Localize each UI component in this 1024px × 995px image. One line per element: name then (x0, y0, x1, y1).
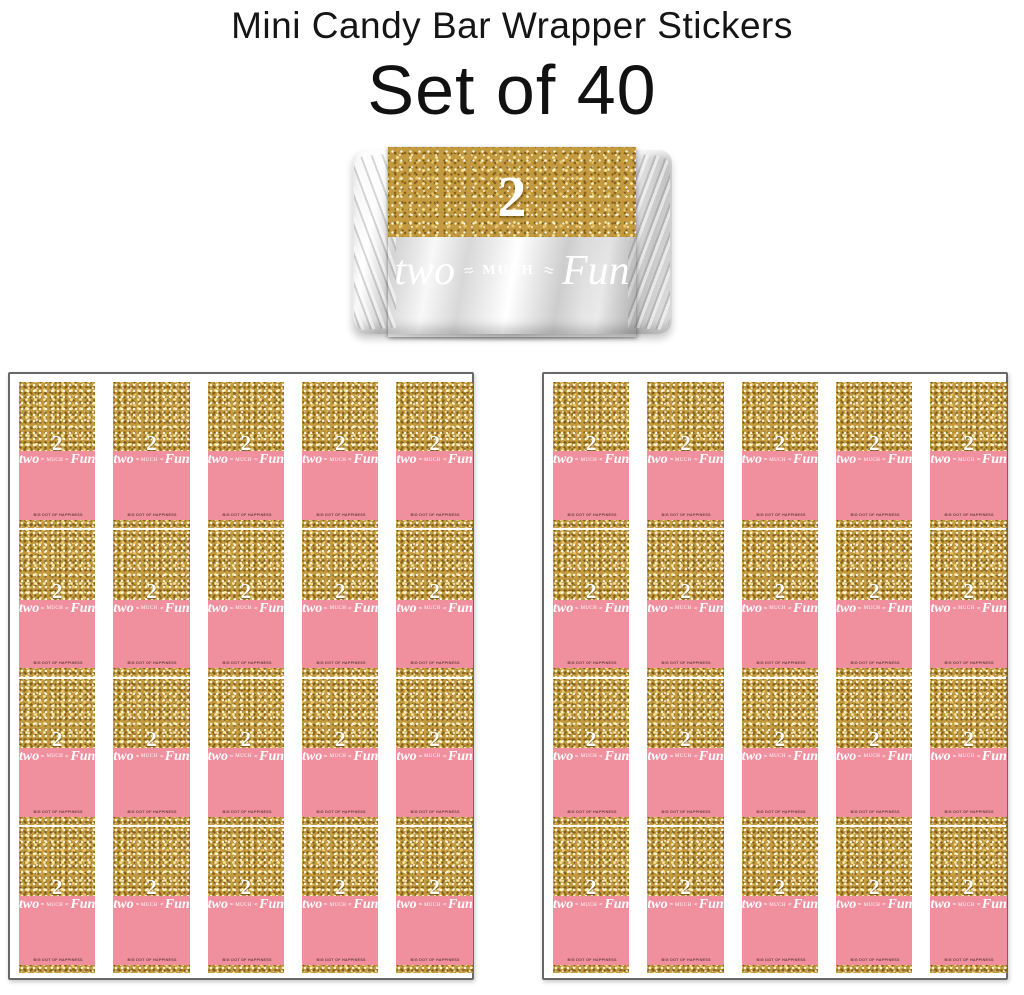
phrase-word-two: two (553, 602, 573, 616)
phrase-word-fun: Fun (354, 750, 379, 764)
wrapper-gold-bottom-band (302, 965, 378, 973)
wrapper-unit: 2two≈MUCH≈FunBIG DOT OF HAPPINESS (19, 530, 95, 676)
wrapper-unit: 2two≈MUCH≈FunBIG DOT OF HAPPINESS (930, 827, 1006, 973)
brand-line: BIG DOT OF HAPPINESS (945, 958, 992, 962)
wrapper-unit: 2two≈MUCH≈FunBIG DOT OF HAPPINESS (930, 382, 1006, 528)
sparkle-accent-icon: ≈ (976, 902, 980, 908)
wrapper-age-number: 2 (146, 583, 157, 600)
wrapper-pink-section: two≈MUCH≈FunBIG DOT OF HAPPINESS (396, 451, 472, 520)
phrase-word-two: two (208, 898, 228, 912)
wrapper-gold-bottom-band (553, 965, 629, 973)
wrapper-gold-section: 2 (208, 530, 284, 599)
wrapper-gold-section: 2 (647, 679, 723, 748)
phrase-word-two: two (19, 453, 39, 467)
phrase-word-much: MUCH (958, 754, 975, 759)
sparkle-accent-icon: ≈ (348, 754, 352, 760)
wrapper-gold-section: 2 (930, 530, 1006, 599)
wrapper-gold-bottom-band (553, 668, 629, 676)
phrase-word-two: two (836, 453, 856, 467)
wrapper-age-number: 2 (241, 879, 252, 896)
phrase-word-fun: Fun (793, 898, 818, 912)
phrase-word-much: MUCH (424, 903, 441, 908)
brand-line: BIG DOT OF HAPPINESS (128, 958, 175, 962)
wrapper-gold-bottom-band (396, 668, 472, 676)
wrapper-age-number: 2 (335, 879, 346, 896)
phrase-word-two: two (930, 453, 950, 467)
phrase-word-much: MUCH (958, 606, 975, 611)
phrase-word-fun: Fun (70, 750, 95, 764)
brand-line: BIG DOT OF HAPPINESS (411, 513, 458, 517)
phrase-word-two: two (836, 602, 856, 616)
phrase-word-fun: Fun (793, 453, 818, 467)
wrapper-age-number: 2 (963, 583, 974, 600)
sparkle-accent-icon: ≈ (763, 902, 767, 908)
sparkle-accent-icon: ≈ (348, 902, 352, 908)
phrase-word-fun: Fun (448, 750, 473, 764)
wrapper-pink-section: two≈MUCH≈FunBIG DOT OF HAPPINESS (647, 600, 723, 669)
phrase-word-much: MUCH (769, 903, 786, 908)
wrapper-gold-section: 2 (553, 382, 629, 451)
wrapper-pink-section: two≈MUCH≈FunBIG DOT OF HAPPINESS (742, 748, 818, 817)
wrapper-age-number: 2 (869, 879, 880, 896)
sparkle-accent-icon: ≈ (575, 754, 579, 760)
wrapper-gold-section: 2 (19, 382, 95, 451)
wrapper-age-number: 2 (680, 435, 691, 452)
wrapper-phrase: two≈MUCH≈Fun (208, 896, 284, 912)
wrapper-gold-bottom-band (742, 965, 818, 973)
phrase-word-two: two (742, 898, 762, 912)
wrapper-phrase: two≈MUCH≈Fun (647, 748, 723, 764)
wrapper-phrase: two≈MUCH≈Fun (553, 748, 629, 764)
phrase-word-much: MUCH (769, 606, 786, 611)
wrapper-strip: 2two≈MUCH≈FunBIG DOT OF HAPPINESS2two≈MU… (647, 382, 723, 973)
sparkle-accent-icon: ≈ (135, 902, 139, 908)
phrase-word-much: MUCH (675, 458, 692, 463)
phrase-word-two: two (930, 898, 950, 912)
wrapper-pink-section: two≈MUCH≈FunBIG DOT OF HAPPINESS (553, 600, 629, 669)
sparkle-accent-icon: ≈ (442, 754, 446, 760)
wrapper-phrase: two≈MUCH≈Fun (836, 451, 912, 467)
wrapper-gold-bottom-band (553, 520, 629, 528)
phrase-word-much: MUCH (141, 903, 158, 908)
wrapper-pink-section: two≈MUCH≈FunBIG DOT OF HAPPINESS (113, 451, 189, 520)
wrapper-gold-section: 2 (553, 827, 629, 896)
wrapper-gold-bottom-band (742, 520, 818, 528)
phrase-word-much: MUCH (482, 263, 534, 279)
wrapper-phrase: two≈MUCH≈Fun (113, 451, 189, 467)
wrapper-pink-section: two≈MUCH≈FunBIG DOT OF HAPPINESS (930, 748, 1006, 817)
wrapper-gold-section: 2 (742, 530, 818, 599)
phrase-word-much: MUCH (864, 458, 881, 463)
wrapper-unit: 2two≈MUCH≈FunBIG DOT OF HAPPINESS (302, 679, 378, 825)
phrase-word-much: MUCH (958, 903, 975, 908)
phrase-word-fun: Fun (888, 453, 913, 467)
brand-line: BIG DOT OF HAPPINESS (568, 810, 615, 814)
wrapper-gold-section: 2 (742, 382, 818, 451)
phrase-word-much: MUCH (47, 458, 64, 463)
wrapper-gold-bottom-band (647, 965, 723, 973)
brand-line: BIG DOT OF HAPPINESS (662, 662, 709, 666)
wrapper-gold-section: 2 (396, 530, 472, 599)
wrapper-unit: 2two≈MUCH≈FunBIG DOT OF HAPPINESS (396, 382, 472, 528)
wrapper-phrase: two≈MUCH≈Fun (396, 896, 472, 912)
phrase-word-much: MUCH (675, 606, 692, 611)
sparkle-accent-icon: ≈ (882, 457, 886, 463)
wrapper-unit: 2two≈MUCH≈FunBIG DOT OF HAPPINESS (930, 530, 1006, 676)
wrapper-pink-section: two≈MUCH≈FunBIG DOT OF HAPPINESS (113, 896, 189, 965)
phrase-word-fun: Fun (699, 898, 724, 912)
wrapper-pink-section: two≈MUCH≈FunBIG DOT OF HAPPINESS (396, 748, 472, 817)
brand-line: BIG DOT OF HAPPINESS (317, 958, 364, 962)
phrase-word-much: MUCH (235, 903, 252, 908)
sparkle-accent-icon: ≈ (952, 754, 956, 760)
wrapper-age-number: 2 (241, 435, 252, 452)
wrapper-phrase: two≈MUCH≈Fun (742, 451, 818, 467)
brand-line: BIG DOT OF HAPPINESS (945, 810, 992, 814)
wrapper-age-number: 2 (586, 435, 597, 452)
phrase-word-fun: Fun (354, 602, 379, 616)
wrapper-age-number: 2 (680, 583, 691, 600)
sparkle-accent-icon: ≈ (542, 260, 555, 282)
phrase-word-much: MUCH (424, 458, 441, 463)
wrapper-gold-bottom-band (742, 668, 818, 676)
sparkle-accent-icon: ≈ (669, 902, 673, 908)
brand-line: BIG DOT OF HAPPINESS (128, 662, 175, 666)
wrapper-unit: 2two≈MUCH≈FunBIG DOT OF HAPPINESS (396, 827, 472, 973)
wrapper-age-number: 2 (52, 583, 63, 600)
wrapper-gold-section: 2 (388, 147, 636, 237)
sparkle-accent-icon: ≈ (65, 605, 69, 611)
wrapper-gold-bottom-band (742, 817, 818, 825)
sparkle-accent-icon: ≈ (135, 605, 139, 611)
sparkle-accent-icon: ≈ (348, 605, 352, 611)
sparkle-accent-icon: ≈ (418, 457, 422, 463)
brand-line: BIG DOT OF HAPPINESS (945, 662, 992, 666)
sparkle-accent-icon: ≈ (693, 902, 697, 908)
wrapper-age-number: 2 (586, 583, 597, 600)
phrase-word-much: MUCH (769, 458, 786, 463)
phrase-word-much: MUCH (235, 458, 252, 463)
wrapper-unit: 2two≈MUCH≈FunBIG DOT OF HAPPINESS (553, 679, 629, 825)
wrapper-age-number: 2 (963, 435, 974, 452)
wrapper-gold-bottom-band (930, 668, 1006, 676)
phrase-word-fun: Fun (448, 453, 473, 467)
wrapper-strip: 2two≈MUCH≈FunBIG DOT OF HAPPINESS2two≈MU… (742, 382, 818, 973)
sparkle-accent-icon: ≈ (763, 457, 767, 463)
wrapper-gold-section: 2 (208, 382, 284, 451)
sparkle-accent-icon: ≈ (462, 260, 475, 282)
wrapper-unit: 2two≈MUCH≈FunBIG DOT OF HAPPINESS (208, 679, 284, 825)
brand-line: BIG DOT OF HAPPINESS (851, 662, 898, 666)
sparkle-accent-icon: ≈ (693, 457, 697, 463)
wrapper-pink-section: two≈MUCH≈FunBIG DOT OF HAPPINESS (647, 748, 723, 817)
wrapper-age-number: 2 (963, 731, 974, 748)
wrapper-gold-section: 2 (19, 827, 95, 896)
sparkle-accent-icon: ≈ (159, 902, 163, 908)
wrapper-gold-section: 2 (396, 382, 472, 451)
phrase-word-two: two (742, 453, 762, 467)
wrapper-pink-section: two ≈ MUCH ≈ Fun (388, 237, 636, 337)
wrapper-strip: 2two≈MUCH≈FunBIG DOT OF HAPPINESS2two≈MU… (208, 382, 284, 973)
wrapper-pink-section: two≈MUCH≈FunBIG DOT OF HAPPINESS (836, 748, 912, 817)
sparkle-accent-icon: ≈ (693, 605, 697, 611)
sparkle-accent-icon: ≈ (787, 902, 791, 908)
phrase-word-fun: Fun (70, 898, 95, 912)
wrapper-gold-section: 2 (302, 827, 378, 896)
brand-line: BIG DOT OF HAPPINESS (662, 958, 709, 962)
wrapper-unit: 2two≈MUCH≈FunBIG DOT OF HAPPINESS (113, 827, 189, 973)
wrapper-unit: 2two≈MUCH≈FunBIG DOT OF HAPPINESS (647, 679, 723, 825)
wrapper-gold-section: 2 (742, 827, 818, 896)
wrapper-gold-bottom-band (930, 520, 1006, 528)
sparkle-accent-icon: ≈ (348, 457, 352, 463)
phrase-word-two: two (396, 750, 416, 764)
sparkle-accent-icon: ≈ (41, 754, 45, 760)
sparkle-accent-icon: ≈ (324, 605, 328, 611)
brand-line: BIG DOT OF HAPPINESS (756, 810, 803, 814)
candy-bar-wrapper-sticker: 2 two ≈ MUCH ≈ Fun (388, 147, 636, 337)
brand-line: BIG DOT OF HAPPINESS (128, 513, 175, 517)
sparkle-accent-icon: ≈ (599, 457, 603, 463)
wrapper-age-number: 2 (498, 158, 527, 226)
brand-line: BIG DOT OF HAPPINESS (34, 662, 81, 666)
sparkle-accent-icon: ≈ (135, 754, 139, 760)
phrase-word-fun: Fun (982, 453, 1007, 467)
wrapper-unit: 2two≈MUCH≈FunBIG DOT OF HAPPINESS (302, 827, 378, 973)
wrapper-gold-section: 2 (396, 679, 472, 748)
wrapper-pink-section: two≈MUCH≈FunBIG DOT OF HAPPINESS (19, 451, 95, 520)
phrase-word-much: MUCH (675, 903, 692, 908)
phrase-word-much: MUCH (141, 754, 158, 759)
wrapper-strip: 2two≈MUCH≈FunBIG DOT OF HAPPINESS2two≈MU… (302, 382, 378, 973)
wrapper-age-number: 2 (429, 879, 440, 896)
sparkle-accent-icon: ≈ (858, 754, 862, 760)
phrase-word-fun: Fun (562, 250, 630, 292)
sparkle-accent-icon: ≈ (575, 605, 579, 611)
phrase-word-two: two (396, 453, 416, 467)
phrase-word-two: two (208, 453, 228, 467)
wrapper-phrase: two≈MUCH≈Fun (19, 451, 95, 467)
wrapper-pink-section: two≈MUCH≈FunBIG DOT OF HAPPINESS (553, 896, 629, 965)
wrapper-age-number: 2 (586, 731, 597, 748)
phrase-word-two: two (647, 453, 667, 467)
phrase-word-much: MUCH (675, 754, 692, 759)
phrase-word-much: MUCH (47, 606, 64, 611)
phrase-word-much: MUCH (141, 606, 158, 611)
phrase-word-two: two (396, 602, 416, 616)
sparkle-accent-icon: ≈ (858, 902, 862, 908)
wrapper-pink-section: two≈MUCH≈FunBIG DOT OF HAPPINESS (302, 451, 378, 520)
brand-line: BIG DOT OF HAPPINESS (411, 810, 458, 814)
sparkle-accent-icon: ≈ (65, 457, 69, 463)
wrapper-age-number: 2 (775, 879, 786, 896)
wrapper-strip: 2two≈MUCH≈FunBIG DOT OF HAPPINESS2two≈MU… (553, 382, 629, 973)
brand-line: BIG DOT OF HAPPINESS (851, 810, 898, 814)
wrapper-gold-bottom-band (647, 817, 723, 825)
sparkle-accent-icon: ≈ (229, 902, 233, 908)
brand-line: BIG DOT OF HAPPINESS (317, 513, 364, 517)
wrapper-pink-section: two≈MUCH≈FunBIG DOT OF HAPPINESS (930, 451, 1006, 520)
sparkle-accent-icon: ≈ (693, 754, 697, 760)
phrase-word-much: MUCH (330, 903, 347, 908)
phrase-word-two: two (742, 750, 762, 764)
phrase-word-fun: Fun (448, 602, 473, 616)
wrapper-gold-bottom-band (647, 520, 723, 528)
wrapper-phrase: two≈MUCH≈Fun (647, 896, 723, 912)
brand-line: BIG DOT OF HAPPINESS (222, 662, 269, 666)
sparkle-accent-icon: ≈ (135, 457, 139, 463)
wrapper-gold-bottom-band (930, 817, 1006, 825)
wrapper-gold-section: 2 (930, 382, 1006, 451)
phrase-word-fun: Fun (888, 602, 913, 616)
phrase-word-fun: Fun (165, 898, 190, 912)
sparkle-accent-icon: ≈ (418, 605, 422, 611)
sparkle-accent-icon: ≈ (159, 605, 163, 611)
wrapper-pink-section: two≈MUCH≈FunBIG DOT OF HAPPINESS (553, 451, 629, 520)
wrapper-strip: 2two≈MUCH≈FunBIG DOT OF HAPPINESS2two≈MU… (113, 382, 189, 973)
wrapper-gold-section: 2 (930, 827, 1006, 896)
sparkle-accent-icon: ≈ (976, 605, 980, 611)
phrase-word-fun: Fun (888, 750, 913, 764)
phrase-word-much: MUCH (581, 458, 598, 463)
wrapper-pink-section: two≈MUCH≈FunBIG DOT OF HAPPINESS (647, 896, 723, 965)
wrapper-phrase: two≈MUCH≈Fun (553, 896, 629, 912)
sparkle-accent-icon: ≈ (41, 457, 45, 463)
sticker-sheet-left: 2two≈MUCH≈FunBIG DOT OF HAPPINESS2two≈MU… (8, 372, 474, 980)
wrapper-unit: 2two≈MUCH≈FunBIG DOT OF HAPPINESS (647, 382, 723, 528)
sparkle-accent-icon: ≈ (229, 754, 233, 760)
phrase-word-two: two (647, 898, 667, 912)
phrase-word-fun: Fun (165, 750, 190, 764)
wrapper-unit: 2two≈MUCH≈FunBIG DOT OF HAPPINESS (19, 679, 95, 825)
wrapper-unit: 2two≈MUCH≈FunBIG DOT OF HAPPINESS (836, 827, 912, 973)
wrapper-age-number: 2 (241, 731, 252, 748)
wrapper-gold-bottom-band (553, 817, 629, 825)
wrapper-unit: 2two≈MUCH≈FunBIG DOT OF HAPPINESS (553, 382, 629, 528)
wrapper-strip: 2two≈MUCH≈FunBIG DOT OF HAPPINESS2two≈MU… (836, 382, 912, 973)
wrapper-phrase: two≈MUCH≈Fun (836, 600, 912, 616)
set-count: Set of 40 (0, 50, 1024, 130)
phrase-word-fun: Fun (165, 453, 190, 467)
phrase-word-two: two (113, 898, 133, 912)
phrase-word-much: MUCH (424, 754, 441, 759)
wrapper-phrase: two≈MUCH≈Fun (302, 896, 378, 912)
wrapper-phrase: two≈MUCH≈Fun (19, 748, 95, 764)
phrase-word-much: MUCH (235, 606, 252, 611)
sparkle-accent-icon: ≈ (442, 902, 446, 908)
sparkle-accent-icon: ≈ (253, 605, 257, 611)
brand-line: BIG DOT OF HAPPINESS (662, 810, 709, 814)
wrapper-age-number: 2 (775, 731, 786, 748)
wrapper-age-number: 2 (869, 435, 880, 452)
wrapper-phrase: two≈MUCH≈Fun (742, 748, 818, 764)
sparkle-accent-icon: ≈ (787, 754, 791, 760)
phrase-word-fun: Fun (793, 602, 818, 616)
wrapper-age-number: 2 (335, 435, 346, 452)
wrapper-gold-section: 2 (553, 530, 629, 599)
wrapper-unit: 2two≈MUCH≈FunBIG DOT OF HAPPINESS (742, 382, 818, 528)
wrapper-age-number: 2 (429, 731, 440, 748)
sparkle-accent-icon: ≈ (159, 754, 163, 760)
wrapper-phrase: two≈MUCH≈Fun (930, 896, 1006, 912)
brand-line: BIG DOT OF HAPPINESS (851, 513, 898, 517)
sparkle-accent-icon: ≈ (159, 457, 163, 463)
wrapper-phrase: two≈MUCH≈Fun (930, 748, 1006, 764)
brand-line: BIG DOT OF HAPPINESS (756, 513, 803, 517)
wrapper-gold-section: 2 (396, 827, 472, 896)
brand-line: BIG DOT OF HAPPINESS (222, 513, 269, 517)
wrapper-phrase: two≈MUCH≈Fun (302, 748, 378, 764)
phrase-word-fun: Fun (165, 602, 190, 616)
wrapper-age-number: 2 (869, 731, 880, 748)
sparkle-accent-icon: ≈ (858, 457, 862, 463)
wrapper-gold-bottom-band (836, 520, 912, 528)
phrase-word-fun: Fun (70, 602, 95, 616)
wrapper-pink-section: two≈MUCH≈FunBIG DOT OF HAPPINESS (302, 896, 378, 965)
phrase-word-fun: Fun (699, 453, 724, 467)
wrapper-pink-section: two≈MUCH≈FunBIG DOT OF HAPPINESS (208, 600, 284, 669)
wrapper-gold-bottom-band (302, 520, 378, 528)
wrapper-gold-bottom-band (302, 668, 378, 676)
phrase-word-two: two (302, 898, 322, 912)
wrapper-unit: 2two≈MUCH≈FunBIG DOT OF HAPPINESS (930, 679, 1006, 825)
sparkle-accent-icon: ≈ (787, 457, 791, 463)
wrapper-phrase: two≈MUCH≈Fun (647, 451, 723, 467)
brand-line: BIG DOT OF HAPPINESS (34, 958, 81, 962)
wrapper-unit: 2two≈MUCH≈FunBIG DOT OF HAPPINESS (208, 382, 284, 528)
phrase-word-much: MUCH (235, 754, 252, 759)
phrase-word-two: two (553, 453, 573, 467)
brand-line: BIG DOT OF HAPPINESS (34, 513, 81, 517)
brand-line: BIG DOT OF HAPPINESS (851, 958, 898, 962)
wrapper-pink-section: two≈MUCH≈FunBIG DOT OF HAPPINESS (742, 600, 818, 669)
phrase-word-much: MUCH (581, 606, 598, 611)
phrase-word-fun: Fun (70, 453, 95, 467)
phrase-word-fun: Fun (604, 750, 629, 764)
phrase-word-fun: Fun (259, 602, 284, 616)
wrapper-gold-section: 2 (302, 679, 378, 748)
phrase-word-much: MUCH (47, 754, 64, 759)
wrapper-phrase: two≈MUCH≈Fun (553, 451, 629, 467)
wrapper-pink-section: two≈MUCH≈FunBIG DOT OF HAPPINESS (208, 748, 284, 817)
wrapper-gold-section: 2 (930, 679, 1006, 748)
brand-line: BIG DOT OF HAPPINESS (411, 662, 458, 666)
wrapper-strip: 2two≈MUCH≈FunBIG DOT OF HAPPINESS2two≈MU… (930, 382, 1006, 973)
wrapper-phrase: two≈MUCH≈Fun (208, 748, 284, 764)
brand-line: BIG DOT OF HAPPINESS (568, 958, 615, 962)
sparkle-accent-icon: ≈ (669, 457, 673, 463)
wrapper-gold-section: 2 (113, 530, 189, 599)
wrapper-age-number: 2 (146, 435, 157, 452)
wrapper-unit: 2two≈MUCH≈FunBIG DOT OF HAPPINESS (647, 827, 723, 973)
wrapper-phrase: two≈MUCH≈Fun (396, 600, 472, 616)
brand-line: BIG DOT OF HAPPINESS (662, 513, 709, 517)
wrapper-phrase: two≈MUCH≈Fun (113, 896, 189, 912)
wrapper-phrase: two≈MUCH≈Fun (742, 896, 818, 912)
sparkle-accent-icon: ≈ (952, 457, 956, 463)
sparkle-accent-icon: ≈ (65, 902, 69, 908)
wrapper-phrase: two≈MUCH≈Fun (208, 451, 284, 467)
phrase-word-two: two (302, 602, 322, 616)
wrapper-gold-section: 2 (647, 530, 723, 599)
wrapper-unit: 2two≈MUCH≈FunBIG DOT OF HAPPINESS (302, 530, 378, 676)
wrapper-phrase: two≈MUCH≈Fun (553, 600, 629, 616)
wrapper-pink-section: two≈MUCH≈FunBIG DOT OF HAPPINESS (113, 748, 189, 817)
wrapper-unit: 2two≈MUCH≈FunBIG DOT OF HAPPINESS (742, 827, 818, 973)
sparkle-accent-icon: ≈ (787, 605, 791, 611)
phrase-word-fun: Fun (448, 898, 473, 912)
wrapper-age-number: 2 (52, 731, 63, 748)
